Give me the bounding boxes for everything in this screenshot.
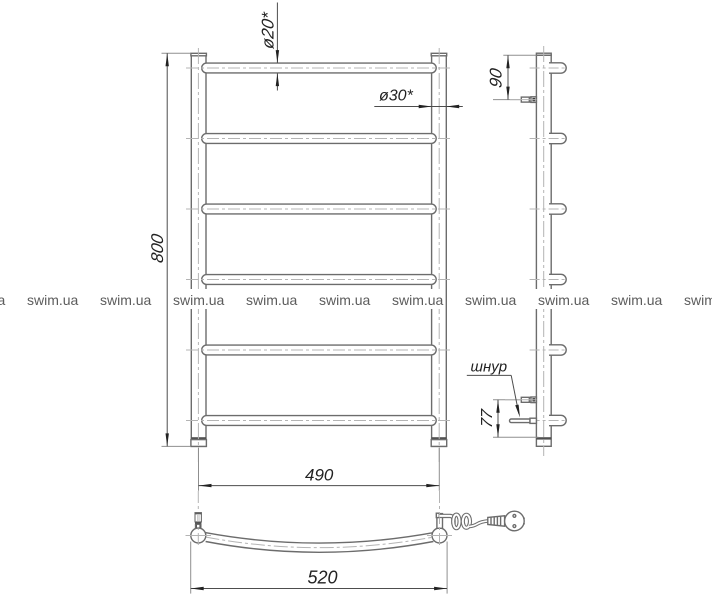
svg-text:swim.ua: swim.ua	[100, 292, 152, 308]
svg-text:swim.ua: swim.ua	[611, 292, 663, 308]
svg-text:ø30*: ø30*	[379, 88, 414, 105]
svg-text:swim.ua: swim.ua	[246, 292, 298, 308]
svg-text:490: 490	[305, 466, 334, 485]
svg-text:swim.ua: swim.ua	[465, 292, 517, 308]
svg-text:swim.ua: swim.ua	[684, 292, 712, 308]
svg-text:swim.ua: swim.ua	[392, 292, 444, 308]
svg-text:swim.ua: swim.ua	[0, 292, 6, 308]
svg-text:swim.ua: swim.ua	[173, 292, 225, 308]
svg-text:swim.ua: swim.ua	[27, 292, 79, 308]
svg-text:90: 90	[486, 66, 506, 89]
svg-text:swim.ua: swim.ua	[319, 292, 371, 308]
svg-text:800: 800	[147, 232, 167, 264]
svg-text:ø20*: ø20*	[258, 9, 278, 50]
svg-text:520: 520	[308, 568, 338, 588]
svg-text:шнур: шнур	[471, 359, 508, 376]
svg-text:77: 77	[478, 407, 496, 429]
svg-text:swim.ua: swim.ua	[538, 292, 590, 308]
